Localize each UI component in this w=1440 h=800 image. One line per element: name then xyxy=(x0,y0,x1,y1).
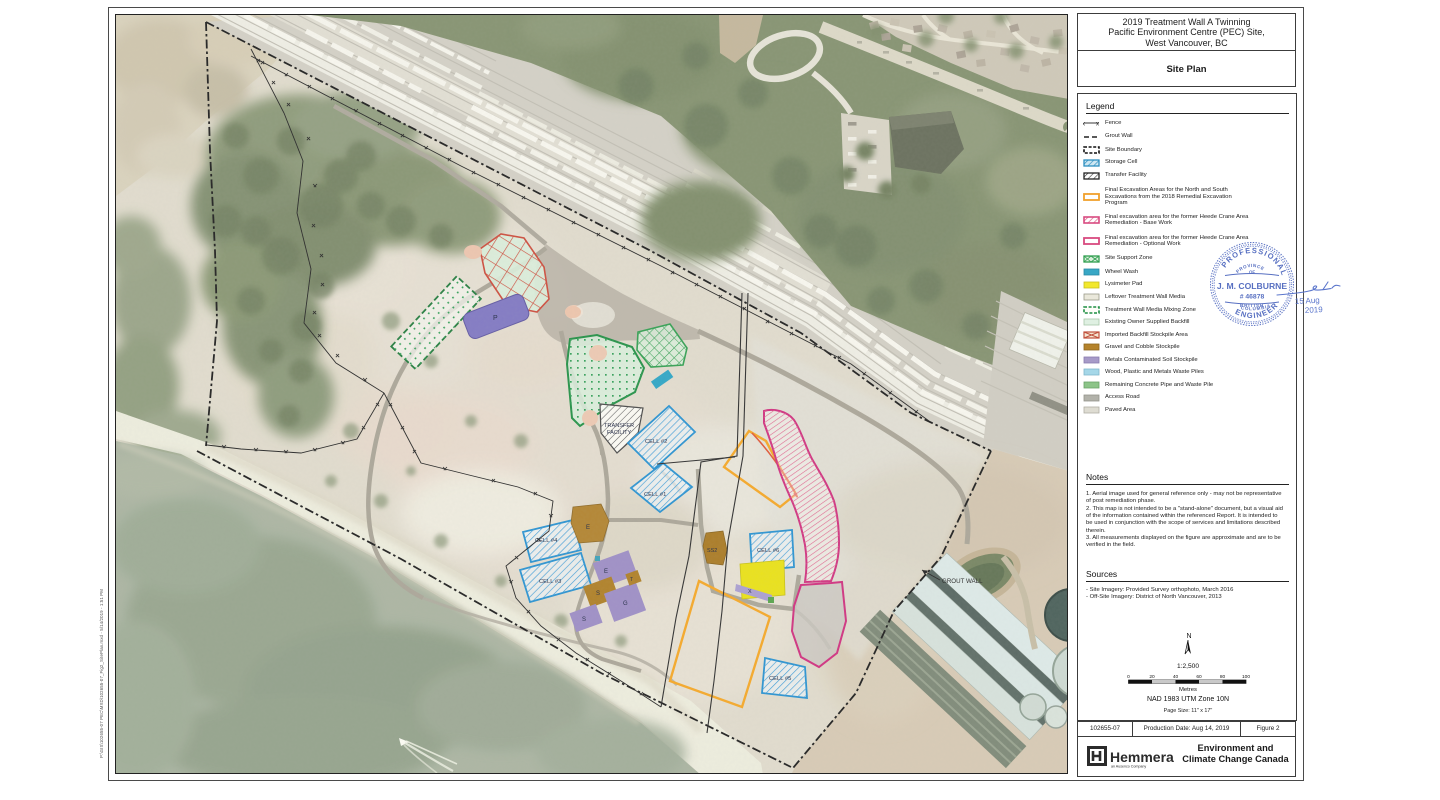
svg-text:40: 40 xyxy=(1173,674,1179,680)
svg-text:2019: 2019 xyxy=(1305,305,1324,315)
svg-text:x: x xyxy=(1083,122,1085,127)
svg-text:0: 0 xyxy=(1127,674,1130,680)
svg-text:an Ausenco Company: an Ausenco Company xyxy=(1111,764,1146,768)
svg-text:60: 60 xyxy=(1196,674,1202,680)
svg-text:Hemmera: Hemmera xyxy=(1110,749,1174,765)
svg-text:x: x xyxy=(1096,122,1099,127)
svg-text:80: 80 xyxy=(1220,674,1226,680)
svg-text:20: 20 xyxy=(1149,674,1155,680)
svg-text:# 46878: # 46878 xyxy=(1240,294,1265,301)
svg-text:100: 100 xyxy=(1242,674,1250,680)
